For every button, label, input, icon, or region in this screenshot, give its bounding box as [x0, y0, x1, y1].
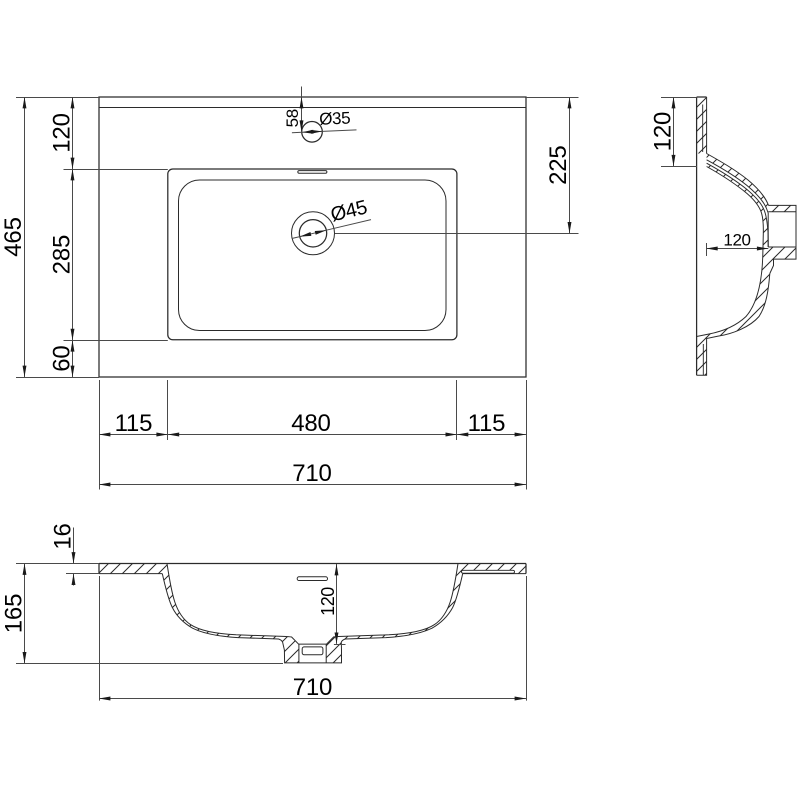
svg-text:115: 115 [115, 410, 153, 437]
svg-text:710: 710 [292, 460, 331, 487]
svg-text:Ø35: Ø35 [319, 108, 351, 128]
svg-text:115: 115 [468, 410, 506, 437]
svg-text:225: 225 [545, 145, 572, 184]
svg-text:120: 120 [723, 231, 750, 250]
svg-text:58: 58 [283, 109, 302, 127]
svg-text:285: 285 [49, 235, 76, 274]
svg-text:120: 120 [49, 113, 76, 152]
svg-text:120: 120 [318, 587, 338, 616]
svg-text:16: 16 [50, 523, 77, 549]
svg-text:60: 60 [49, 345, 76, 371]
svg-text:710: 710 [293, 674, 332, 701]
svg-text:465: 465 [0, 217, 27, 256]
svg-text:480: 480 [291, 410, 330, 437]
svg-text:120: 120 [650, 112, 677, 151]
svg-text:165: 165 [0, 594, 27, 633]
